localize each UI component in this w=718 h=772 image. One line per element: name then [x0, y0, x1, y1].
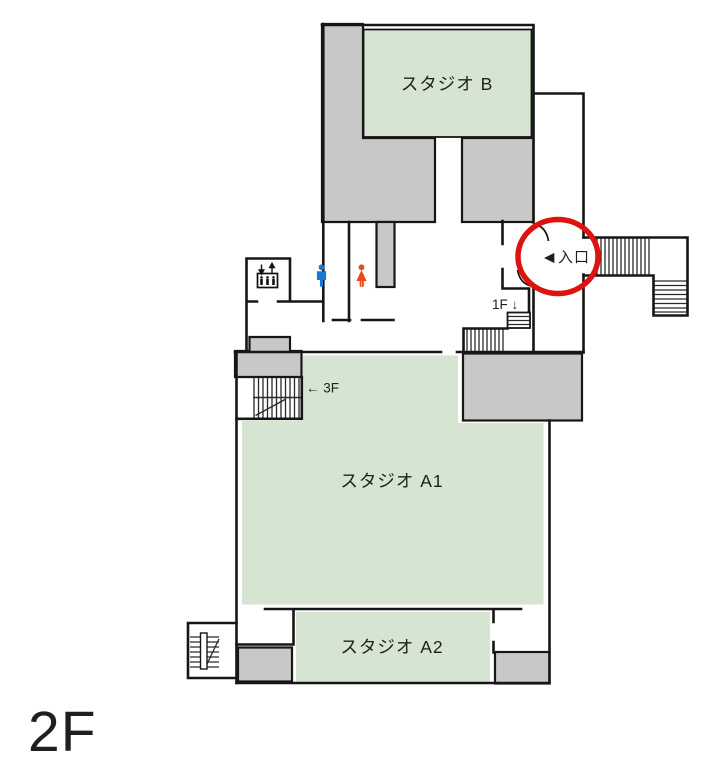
- entrance-arrow-icon: ◀: [544, 250, 555, 265]
- stairs-down-1f-label: 1F ↓: [492, 297, 518, 312]
- female-icon-leg-left: [360, 281, 362, 287]
- gray-block-bottom-right: [495, 652, 550, 684]
- entrance-label: 入口: [558, 249, 590, 266]
- walls-stairs-1f: [464, 329, 508, 353]
- studio-a1-label: スタジオ A1: [340, 471, 443, 491]
- studio-b-label: スタジオ B: [401, 74, 494, 94]
- female-restroom-icon: [356, 264, 366, 286]
- studio-a2-label: スタジオ A2: [340, 637, 443, 657]
- gray-block-top-right: [462, 138, 534, 222]
- gray-block-3f-stairs: [235, 337, 302, 377]
- elevator-icon: [258, 263, 278, 287]
- male-restroom-icon: [317, 264, 326, 286]
- male-icon-head: [319, 264, 325, 270]
- gray-block-restroom-shaft: [377, 222, 395, 287]
- elevator-arrows: [259, 263, 274, 274]
- male-icon-body: [317, 271, 326, 287]
- floor-plan: スタジオ B スタジオ A1 スタジオ A2 ◀ 入口 1F ↓ ← 3F 2F: [0, 0, 718, 772]
- floor-map-page: スタジオ B スタジオ A1 スタジオ A2 ◀ 入口 1F ↓ ← 3F 2F: [0, 0, 718, 772]
- floor-label: 2F: [28, 700, 97, 764]
- female-icon-dress: [356, 270, 366, 281]
- fire-escape-rail: [201, 633, 208, 669]
- gray-block-mid-right: [463, 354, 582, 421]
- stairs-right-lower-treads: [654, 281, 687, 312]
- stairs-up-3f-label: ← 3F: [306, 381, 339, 396]
- gray-block-bottom-left: [238, 648, 292, 682]
- elevator-passengers: [260, 276, 275, 285]
- stairs-1f-landing-treads: [508, 317, 530, 325]
- stairs-1f-treads: [467, 329, 503, 352]
- stairs-right-upper-treads: [597, 239, 649, 275]
- female-icon-head: [359, 264, 365, 270]
- walls-fire-escape: [188, 623, 237, 678]
- female-icon-leg-right: [362, 281, 364, 287]
